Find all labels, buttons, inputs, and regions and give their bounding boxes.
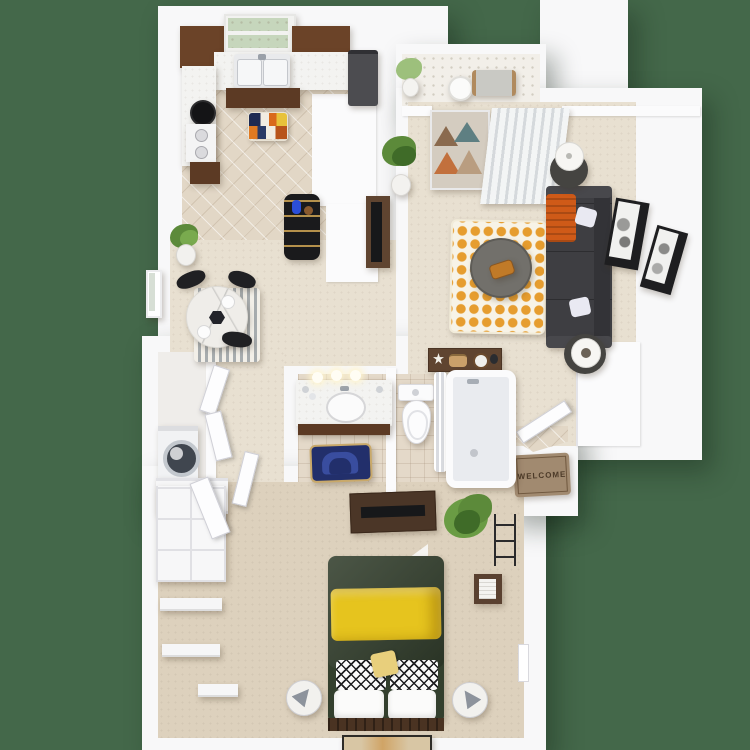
sink-faucet [258, 54, 266, 60]
side-table-north [550, 152, 588, 188]
foot-rug [342, 735, 432, 750]
dining-place-setting [221, 295, 235, 309]
stove-dial-2 [195, 146, 208, 159]
coffee-table-tray [488, 259, 515, 281]
vanity-light-2 [331, 370, 342, 381]
kitchen-rug [248, 112, 288, 141]
nightstand-lamp-left [286, 678, 322, 716]
yellow-blanket [331, 587, 442, 641]
bedroom-window [518, 644, 529, 682]
sink-basin-right [263, 59, 288, 86]
dining-place-setting-2 [197, 325, 211, 339]
tv [371, 202, 382, 262]
bar-shelf-vase-blue [292, 200, 301, 214]
sofa-pillow-2 [568, 296, 591, 318]
dining-window [146, 270, 162, 318]
living-plant-foliage-2 [392, 146, 416, 166]
wall-shelf-plank-2 [162, 644, 220, 657]
foyer-bench [472, 70, 516, 96]
kettle-pan [190, 100, 216, 126]
patio-door-art [430, 110, 490, 190]
wall-shelf-books [474, 574, 502, 604]
vanity-bottles-2 [309, 393, 316, 400]
vanity-cabinet-strip [298, 424, 390, 435]
washer [158, 426, 198, 483]
shower-fixture [467, 379, 479, 384]
foyer-living-wall-right [562, 106, 700, 116]
coffee-table [470, 238, 532, 298]
vanity-light [312, 372, 323, 383]
desk-decor-dark [490, 354, 498, 364]
refrigerator [348, 50, 378, 106]
bathtub-drain [470, 449, 478, 457]
kitchen-window-pane-2 [228, 35, 288, 48]
stove [186, 124, 216, 162]
lamp-north-finial [566, 153, 572, 159]
wall-shelf-plank-3 [198, 684, 238, 697]
art-triangle-3 [434, 152, 460, 174]
console-desk [428, 348, 502, 372]
toilet-flush-button [412, 389, 419, 396]
kitchen-sink [234, 54, 290, 88]
dining-centerpiece [209, 311, 225, 324]
throw-blanket-orange [546, 194, 576, 242]
art-triangle-4 [456, 150, 482, 174]
art-triangle [434, 126, 458, 146]
vanity-bottles-3 [376, 386, 383, 393]
foyer-living-wall-left [402, 106, 432, 116]
lumbar-pillow [370, 650, 399, 679]
kitchen-window-pane [228, 18, 288, 31]
living-plant [382, 136, 420, 198]
bath-rug [309, 443, 372, 483]
vanity-faucet [340, 386, 349, 391]
foyer-plant-pot [402, 78, 419, 97]
floor-plan-canvas: WELCOME [0, 0, 750, 750]
bathtub [446, 370, 516, 488]
stove-dial [195, 129, 208, 142]
ladder-shelf-rung [496, 524, 514, 526]
desk-books [449, 354, 467, 367]
wall-shelf-plank [160, 598, 222, 611]
ladder-shelf [494, 514, 516, 566]
book-stack [479, 579, 496, 599]
desk-clock [473, 353, 489, 369]
tv-console [366, 196, 390, 268]
welcome-mat: WELCOME [513, 453, 571, 498]
vanity-light-3 [350, 370, 361, 381]
welcome-mat-text: WELCOME [517, 457, 567, 493]
nightstand-lamp-right [452, 680, 488, 718]
washer-door-glare [170, 447, 183, 460]
foyer-plant [396, 58, 426, 100]
sink-basin-left [237, 59, 262, 86]
side-table-south [564, 334, 606, 374]
table-lamp-north [555, 142, 584, 171]
pantry-wall-column [312, 94, 376, 206]
living-plant-pot [391, 174, 411, 196]
ladder-shelf-rung-2 [496, 540, 514, 542]
bedroom-dresser [349, 491, 436, 534]
vanity-bottles [302, 386, 309, 393]
toilet [398, 384, 434, 401]
bedroom-plant [444, 494, 496, 546]
kitchen-base-cabinet [226, 88, 300, 108]
bed [328, 556, 444, 724]
headboard [328, 718, 444, 731]
sofa [546, 186, 612, 348]
bath-rug-core [329, 458, 352, 475]
dining-plant-pot [176, 244, 196, 266]
bedroom-tv [361, 505, 425, 518]
desk-decor-star [433, 353, 444, 364]
table-lamp-south [571, 338, 601, 368]
lamp-south-opening [581, 348, 591, 358]
welcome-mat-border: WELCOME [516, 456, 568, 495]
vanity-counter [296, 380, 392, 426]
ladder-shelf-rung-3 [496, 556, 514, 558]
dining-window-glass [149, 273, 155, 311]
bar-shelf [284, 194, 320, 260]
stove-base-cabinet [190, 162, 220, 184]
kitchen-rug-lower [249, 126, 287, 139]
foyer-hat-box [448, 76, 473, 101]
art-triangle-2 [454, 122, 480, 142]
kitchen-window [224, 14, 296, 56]
pillow-white [334, 690, 384, 720]
washer-door [163, 440, 200, 477]
vanity-sink [326, 392, 366, 423]
pillow-white-2 [388, 690, 436, 720]
bar-shelf-decor [304, 206, 313, 215]
toilet-seat-ring [407, 410, 428, 440]
wall-art-canvas-1 [609, 201, 640, 260]
dining-plant [168, 224, 202, 264]
foyer-plant-foliage [396, 58, 422, 80]
